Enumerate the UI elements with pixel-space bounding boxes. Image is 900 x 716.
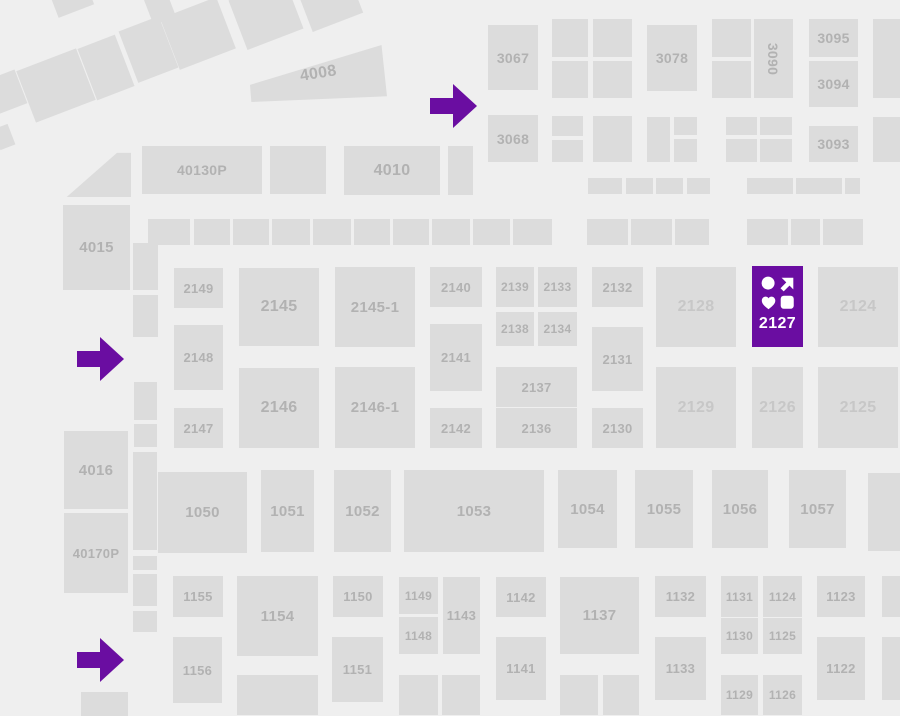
booth-2146-1[interactable]: 2146-1 xyxy=(335,367,415,448)
booth-2140[interactable]: 2140 xyxy=(430,267,482,307)
booth-label: 2139 xyxy=(501,280,529,294)
arrow-shaft xyxy=(77,351,102,367)
booth-label: 4008 xyxy=(299,62,338,86)
booth-label: 1056 xyxy=(723,501,758,518)
booth-label: 2149 xyxy=(183,281,213,296)
arrow-head xyxy=(100,337,124,381)
booth-1054[interactable]: 1054 xyxy=(558,470,617,548)
arrow-shaft xyxy=(430,98,455,114)
booth-2126[interactable]: 2126 xyxy=(752,367,803,448)
booth-label: 3093 xyxy=(817,136,849,152)
map-block xyxy=(133,556,157,570)
map-block xyxy=(593,19,632,57)
booth-2125[interactable]: 2125 xyxy=(818,367,898,448)
map-block xyxy=(448,146,473,195)
map-block xyxy=(760,117,792,135)
map-block xyxy=(712,61,751,98)
map-block-diagonal xyxy=(0,124,15,150)
booth-label: 4010 xyxy=(374,162,411,180)
booth-label: 1054 xyxy=(570,501,605,518)
map-block xyxy=(760,139,792,162)
booth-label: 2145-1 xyxy=(351,299,400,316)
booth-label: 2146-1 xyxy=(351,399,400,416)
booth-2146[interactable]: 2146 xyxy=(239,368,319,448)
map-block xyxy=(133,295,158,337)
map-block xyxy=(675,219,709,245)
booth-1148[interactable]: 1148 xyxy=(399,617,438,654)
booth-label: 1124 xyxy=(769,590,796,604)
booth-label: 2130 xyxy=(602,421,632,436)
map-block xyxy=(432,219,470,245)
map-block xyxy=(237,675,318,715)
map-block-wedge xyxy=(64,151,131,197)
map-block xyxy=(712,19,751,57)
booth-label: 1051 xyxy=(270,503,305,520)
heart-icon xyxy=(761,297,775,310)
map-block xyxy=(631,219,672,245)
floor-map: 2127 400840130P4010306730683078309030953… xyxy=(0,0,900,716)
booth-label: 1133 xyxy=(666,661,695,676)
map-block xyxy=(603,675,639,715)
booth-1132[interactable]: 1132 xyxy=(655,576,706,617)
booth-label: 1125 xyxy=(769,629,796,643)
booth-1126[interactable]: 1126 xyxy=(763,675,802,715)
booth-label: 2131 xyxy=(602,352,632,367)
booth-label: 2137 xyxy=(521,380,551,395)
booth-1053[interactable]: 1053 xyxy=(404,470,544,552)
booth-2139[interactable]: 2139 xyxy=(496,267,534,307)
booth-2127-label: 2127 xyxy=(759,315,796,333)
booth-label: 1129 xyxy=(726,688,753,702)
booth-2147[interactable]: 2147 xyxy=(174,408,223,448)
booth-1131[interactable]: 1131 xyxy=(721,576,758,617)
booth-1156[interactable]: 1156 xyxy=(173,637,222,703)
booth-label: 1122 xyxy=(826,661,855,676)
booth-label: 2129 xyxy=(678,399,715,417)
map-block xyxy=(674,139,697,162)
booth-label: 1141 xyxy=(506,661,535,676)
booth-label: 2126 xyxy=(759,399,796,417)
booth-label: 4015 xyxy=(79,239,114,256)
map-block xyxy=(882,637,900,700)
booth-label: 3095 xyxy=(817,30,849,46)
map-block xyxy=(133,574,157,606)
booth-label: 1131 xyxy=(726,590,753,604)
booth-label: 1053 xyxy=(457,503,492,520)
booth-3067[interactable]: 3067 xyxy=(488,25,538,90)
booth-1123[interactable]: 1123 xyxy=(817,576,865,617)
booth-3078[interactable]: 3078 xyxy=(647,25,697,91)
booth-2132[interactable]: 2132 xyxy=(592,267,643,307)
booth-4016[interactable]: 4016 xyxy=(64,431,128,509)
map-block xyxy=(313,219,351,245)
arrow-up-right-icon xyxy=(780,278,793,292)
booth-1137[interactable]: 1137 xyxy=(560,577,639,654)
booth-1143[interactable]: 1143 xyxy=(443,577,480,654)
map-block xyxy=(473,219,510,245)
booth-label: 2128 xyxy=(678,298,715,316)
map-block xyxy=(552,116,583,136)
booth-3090[interactable]: 3090 xyxy=(754,19,793,98)
booth-label: 1057 xyxy=(800,501,835,518)
booth-2145-1[interactable]: 2145-1 xyxy=(335,267,415,347)
map-block xyxy=(882,576,900,617)
booth-label: 3094 xyxy=(817,76,849,92)
booth-40170P[interactable]: 40170P xyxy=(64,513,128,593)
booth-label: 2124 xyxy=(840,298,877,316)
map-block xyxy=(133,452,157,550)
map-block xyxy=(133,611,157,632)
booth-1151[interactable]: 1151 xyxy=(332,637,383,702)
map-block xyxy=(791,219,820,245)
booth-40130P[interactable]: 40130P xyxy=(142,146,262,194)
map-block xyxy=(552,19,588,57)
booth-label: 3078 xyxy=(656,50,688,66)
booth-label: 1150 xyxy=(343,589,372,604)
arrow-head xyxy=(453,84,477,128)
map-block xyxy=(873,117,900,162)
map-block xyxy=(587,219,628,245)
booth-2145[interactable]: 2145 xyxy=(239,268,319,346)
booth-label: 2138 xyxy=(501,322,529,336)
booth-3068[interactable]: 3068 xyxy=(488,115,538,162)
booth-2131[interactable]: 2131 xyxy=(592,327,643,391)
booth-1057[interactable]: 1057 xyxy=(789,470,846,548)
booth-1125[interactable]: 1125 xyxy=(763,618,802,654)
direction-arrow-right xyxy=(77,337,124,381)
map-block xyxy=(513,219,552,245)
booth-label: 2146 xyxy=(261,399,298,417)
booth-label: 1050 xyxy=(185,504,220,521)
booth-label: 1137 xyxy=(583,607,617,624)
booth-1050[interactable]: 1050 xyxy=(158,472,247,553)
booth-4015[interactable]: 4015 xyxy=(63,205,130,290)
booth-1130[interactable]: 1130 xyxy=(721,618,758,654)
booth-2137[interactable]: 2137 xyxy=(496,367,577,407)
booth-2148[interactable]: 2148 xyxy=(174,325,223,390)
direction-arrow-right xyxy=(430,84,477,128)
booth-label: 1156 xyxy=(183,663,212,678)
booth-2149[interactable]: 2149 xyxy=(174,268,223,308)
map-block xyxy=(270,146,326,194)
booth-label: 1142 xyxy=(506,590,535,605)
booth-1052[interactable]: 1052 xyxy=(334,470,391,552)
booth-label: 2140 xyxy=(441,280,471,295)
map-block xyxy=(726,117,757,135)
map-block xyxy=(233,219,269,245)
booth-2133[interactable]: 2133 xyxy=(538,267,577,307)
booth-2127[interactable]: 2127 xyxy=(752,266,803,347)
map-block-diagonal xyxy=(228,0,303,50)
arrow-shaft xyxy=(77,652,102,668)
map-block xyxy=(726,139,757,162)
map-block xyxy=(148,219,190,245)
booth-4008[interactable]: 4008 xyxy=(250,45,387,102)
booth-3093[interactable]: 3093 xyxy=(809,126,858,162)
booth-label: 1123 xyxy=(826,589,855,604)
map-block xyxy=(560,675,598,715)
booth-label: 2133 xyxy=(544,280,572,294)
map-block xyxy=(674,117,697,135)
booth-3095[interactable]: 3095 xyxy=(809,19,858,57)
circle-icon xyxy=(761,277,774,290)
booth-4010[interactable]: 4010 xyxy=(344,146,440,195)
booth-2129[interactable]: 2129 xyxy=(656,367,736,448)
map-block xyxy=(134,382,157,420)
map-block xyxy=(823,219,863,245)
map-block xyxy=(593,116,632,162)
booth-label: 2145 xyxy=(261,298,298,316)
booth-1149[interactable]: 1149 xyxy=(399,577,438,614)
map-block xyxy=(399,675,438,715)
booth-1133[interactable]: 1133 xyxy=(655,637,706,700)
booth-2138[interactable]: 2138 xyxy=(496,312,534,346)
booth-1122[interactable]: 1122 xyxy=(817,637,865,700)
booth-1051[interactable]: 1051 xyxy=(261,470,314,552)
map-block xyxy=(81,692,128,716)
booth-label: 3068 xyxy=(497,131,529,147)
booth-label: 1148 xyxy=(405,629,432,643)
booth-label: 1143 xyxy=(447,608,476,623)
map-block xyxy=(647,117,670,162)
booth-label: 1132 xyxy=(666,589,695,604)
map-block xyxy=(626,178,653,194)
booth-label: 2141 xyxy=(441,350,471,365)
map-block xyxy=(552,61,588,98)
booth-label: 1052 xyxy=(345,503,380,520)
booth-label: 2148 xyxy=(183,350,213,365)
map-block xyxy=(272,219,310,245)
booth-2130[interactable]: 2130 xyxy=(592,408,643,448)
booth-2136[interactable]: 2136 xyxy=(496,408,577,448)
map-block xyxy=(845,178,860,194)
booth-label: 1154 xyxy=(261,608,295,625)
booth-2127-icons xyxy=(760,275,796,311)
booth-2141[interactable]: 2141 xyxy=(430,324,482,391)
booth-label: 4016 xyxy=(79,462,114,479)
map-block xyxy=(868,473,900,551)
map-block xyxy=(133,243,158,290)
booth-label: 2132 xyxy=(602,280,632,295)
map-block-diagonal xyxy=(48,0,94,18)
map-block xyxy=(354,219,390,245)
map-block xyxy=(588,178,622,194)
booth-1124[interactable]: 1124 xyxy=(763,576,802,617)
map-block xyxy=(442,675,480,715)
direction-arrow-right xyxy=(77,638,124,682)
booth-2128[interactable]: 2128 xyxy=(656,267,736,347)
map-block xyxy=(687,178,710,194)
booth-label: 2147 xyxy=(183,421,213,436)
map-block xyxy=(593,61,632,98)
booth-1142[interactable]: 1142 xyxy=(496,577,546,617)
map-block xyxy=(393,219,429,245)
booth-1056[interactable]: 1056 xyxy=(712,470,768,548)
booth-label: 1055 xyxy=(647,501,682,518)
booth-label: 2142 xyxy=(441,421,471,436)
arrow-head xyxy=(100,638,124,682)
booth-label: 3067 xyxy=(497,50,529,66)
booth-1154[interactable]: 1154 xyxy=(237,576,318,656)
map-block xyxy=(796,178,842,194)
booth-label: 1155 xyxy=(183,589,212,604)
booth-1055[interactable]: 1055 xyxy=(635,470,693,548)
rounded-square-icon xyxy=(780,296,793,309)
booth-label: 1151 xyxy=(343,662,372,677)
booth-2142[interactable]: 2142 xyxy=(430,408,482,448)
booth-3094[interactable]: 3094 xyxy=(809,61,858,107)
booth-label: 2134 xyxy=(544,322,572,336)
map-block xyxy=(747,178,793,194)
booth-1129[interactable]: 1129 xyxy=(721,675,758,715)
map-block xyxy=(873,19,900,98)
booth-2134[interactable]: 2134 xyxy=(538,312,577,346)
map-block xyxy=(552,140,583,162)
booth-1141[interactable]: 1141 xyxy=(496,637,546,700)
booth-label: 2136 xyxy=(521,421,551,436)
map-block xyxy=(656,178,683,194)
booth-2124[interactable]: 2124 xyxy=(818,267,898,347)
booth-label: 40130P xyxy=(177,162,227,178)
booth-1155[interactable]: 1155 xyxy=(173,576,223,617)
booth-1150[interactable]: 1150 xyxy=(333,576,383,617)
booth-label: 3090 xyxy=(765,42,781,74)
map-block-diagonal xyxy=(295,0,363,32)
booth-label: 1130 xyxy=(726,629,753,643)
map-block xyxy=(747,219,788,245)
map-block xyxy=(134,424,157,447)
map-block xyxy=(194,219,230,245)
booth-label: 2125 xyxy=(840,399,877,417)
booth-label: 1126 xyxy=(769,688,796,702)
booth-label: 40170P xyxy=(73,546,120,561)
booth-label: 1149 xyxy=(405,589,432,603)
